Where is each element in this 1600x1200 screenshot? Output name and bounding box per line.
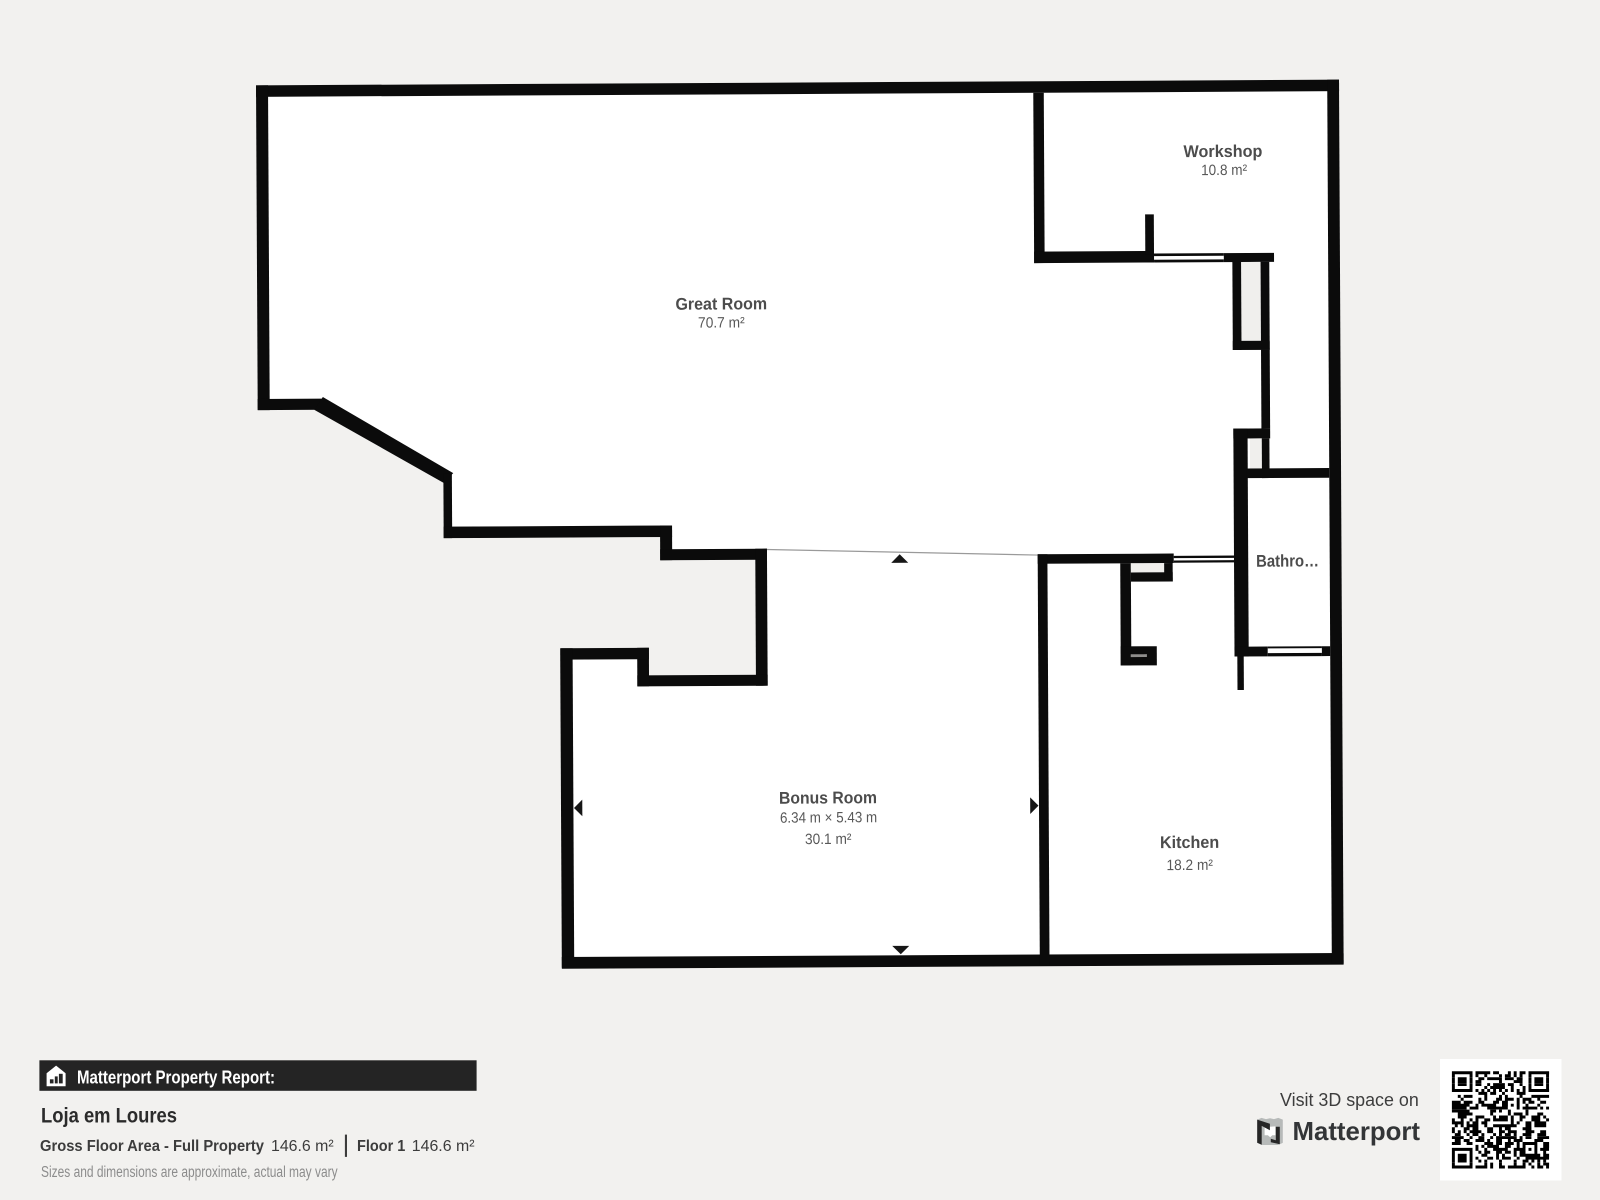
svg-text:10.8 m²: 10.8 m² xyxy=(1201,162,1247,179)
svg-text:146.6 m²: 146.6 m² xyxy=(412,1138,475,1155)
svg-text:30.1 m²: 30.1 m² xyxy=(805,831,852,848)
svg-text:Great Room: Great Room xyxy=(675,294,767,313)
svg-text:Kitchen: Kitchen xyxy=(1160,833,1219,852)
svg-text:Sizes and dimensions are appro: Sizes and dimensions are approximate, ac… xyxy=(41,1164,338,1181)
svg-text:Gross Floor Area - Full Proper: Gross Floor Area - Full Property xyxy=(40,1138,264,1155)
svg-text:Matterport: Matterport xyxy=(1293,1116,1421,1146)
svg-text:Workshop: Workshop xyxy=(1183,142,1262,161)
svg-text:Visit 3D space on: Visit 3D space on xyxy=(1280,1090,1419,1110)
svg-text:146.6 m²: 146.6 m² xyxy=(271,1138,334,1155)
svg-text:Loja em Loures: Loja em Loures xyxy=(41,1105,177,1128)
svg-text:18.2 m²: 18.2 m² xyxy=(1166,857,1213,874)
svg-text:70.7 m²: 70.7 m² xyxy=(698,314,745,331)
svg-text:Bonus Room: Bonus Room xyxy=(779,788,877,808)
svg-text:Floor 1: Floor 1 xyxy=(357,1138,405,1155)
svg-text:Matterport Property Report:: Matterport Property Report: xyxy=(77,1067,275,1087)
svg-text:6.34 m × 5.43 m: 6.34 m × 5.43 m xyxy=(780,809,877,827)
svg-text:Bathro…: Bathro… xyxy=(1256,551,1319,570)
